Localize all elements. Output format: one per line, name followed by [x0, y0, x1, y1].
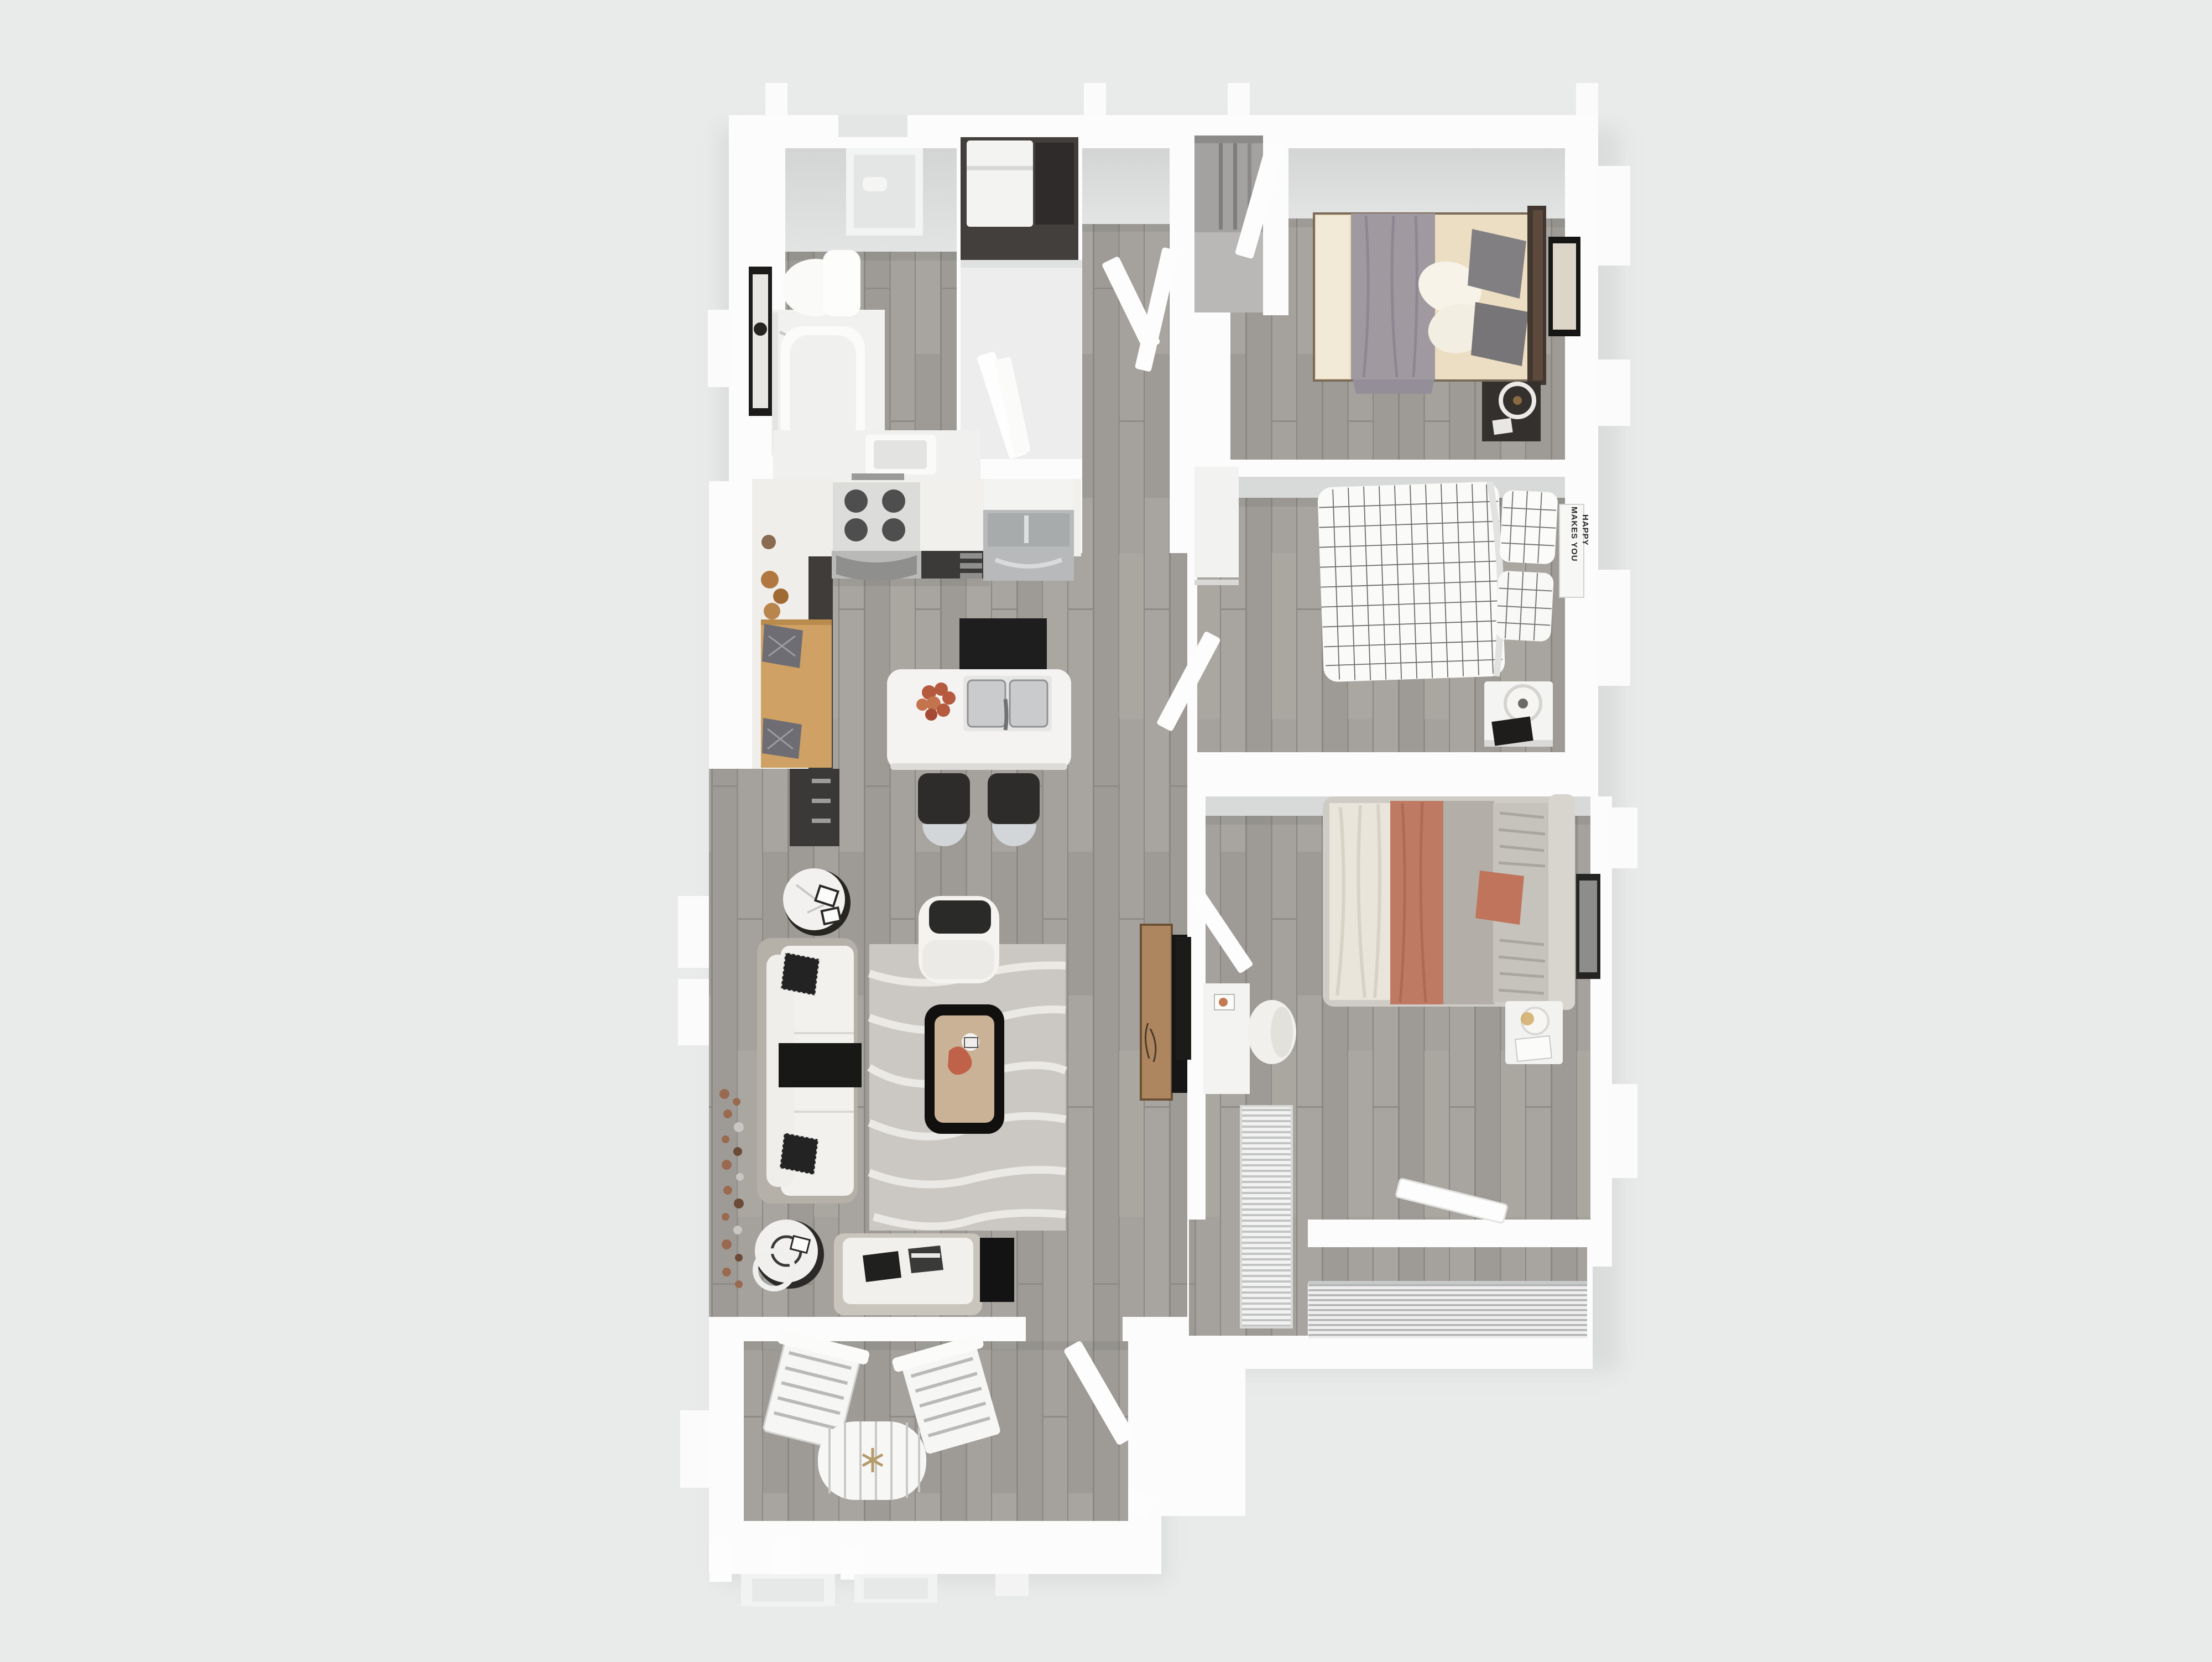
svg-text:HAPPY: HAPPY	[1580, 514, 1590, 546]
svg-text:MAKES YOU: MAKES YOU	[1569, 507, 1579, 562]
